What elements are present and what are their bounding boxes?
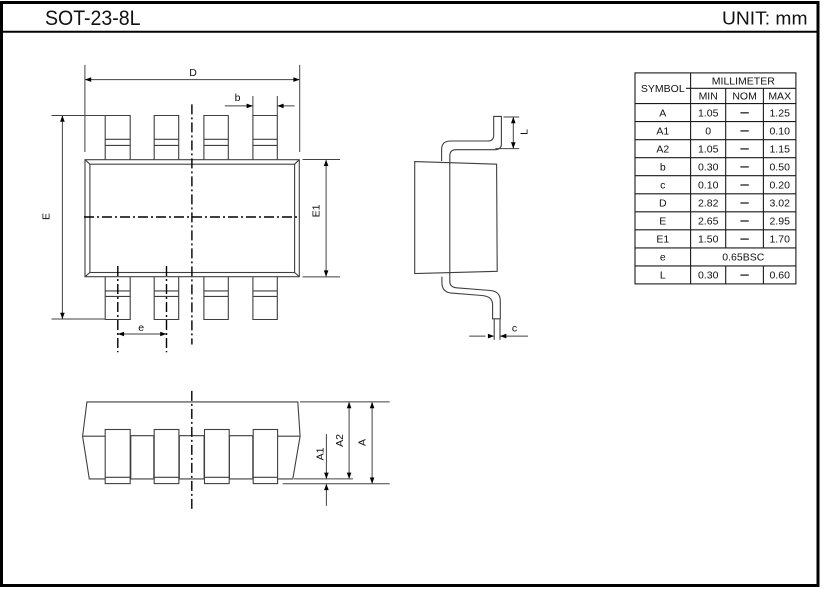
svg-text:UNIT: mm: UNIT: mm [722,8,808,29]
svg-text:A1: A1 [656,125,669,137]
svg-text:D: D [189,67,197,79]
svg-text:0.30: 0.30 [698,161,719,173]
svg-text:1.25: 1.25 [769,107,790,119]
svg-text:e: e [138,322,144,334]
svg-text:0.60: 0.60 [769,270,790,282]
svg-text:E1: E1 [311,204,323,217]
svg-text:E: E [41,213,53,220]
svg-text:0.10: 0.10 [769,125,790,137]
svg-text:0.65BSC: 0.65BSC [722,252,764,264]
svg-text:0: 0 [705,125,711,137]
svg-text:A: A [659,107,666,119]
svg-text:D: D [659,198,667,210]
svg-text:E1: E1 [656,234,669,246]
svg-text:1.50: 1.50 [698,234,719,246]
svg-text:A: A [357,439,369,446]
svg-text:3.02: 3.02 [769,198,790,210]
svg-text:1.70: 1.70 [769,234,790,246]
svg-text:MILLIMETER: MILLIMETER [712,76,775,88]
svg-text:1.05: 1.05 [698,143,719,155]
svg-text:MIN: MIN [699,91,718,103]
svg-text:2.95: 2.95 [769,216,790,228]
svg-text:b: b [660,161,666,173]
svg-text:1.15: 1.15 [769,143,790,155]
svg-text:L: L [660,270,666,282]
svg-text:0.20: 0.20 [769,180,790,192]
svg-text:0.30: 0.30 [698,270,719,282]
svg-text:0.10: 0.10 [698,180,719,192]
svg-text:0.50: 0.50 [769,161,790,173]
svg-text:1.05: 1.05 [698,107,719,119]
svg-text:2.82: 2.82 [698,198,719,210]
svg-text:NOM: NOM [732,91,757,103]
svg-text:c: c [660,180,665,192]
svg-text:A2: A2 [334,434,346,447]
svg-text:SOT-23-8L: SOT-23-8L [45,5,141,30]
svg-text:c: c [512,323,517,335]
svg-text:SYMBOL: SYMBOL [641,83,685,95]
svg-text:A2: A2 [656,143,669,155]
svg-text:b: b [235,92,241,104]
svg-text:2.65: 2.65 [698,216,719,228]
svg-text:E: E [659,216,666,228]
svg-text:A1: A1 [315,447,327,460]
svg-text:MAX: MAX [768,91,791,103]
svg-text:e: e [660,252,666,264]
svg-text:L: L [519,129,531,135]
